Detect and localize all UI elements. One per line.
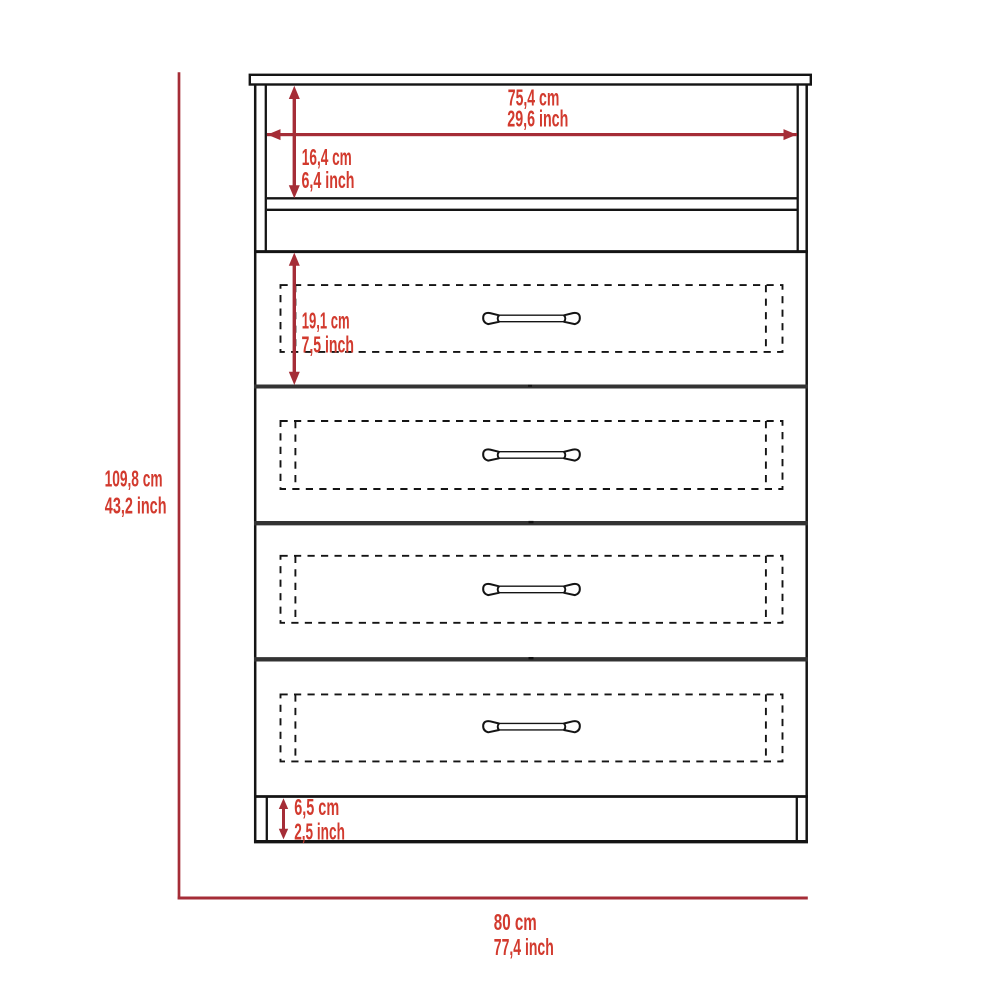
- svg-text:77,4 inch: 77,4 inch: [494, 934, 554, 960]
- svg-text:7,5 inch: 7,5 inch: [302, 332, 355, 358]
- svg-text:6,5 cm: 6,5 cm: [294, 794, 339, 820]
- svg-text:29,6 inch: 29,6 inch: [507, 105, 568, 131]
- svg-text:43,2 inch: 43,2 inch: [105, 492, 167, 518]
- svg-text:109,8 cm: 109,8 cm: [105, 466, 163, 492]
- svg-text:2,5 inch: 2,5 inch: [294, 819, 345, 845]
- svg-text:80 cm: 80 cm: [494, 909, 537, 935]
- svg-text:6,4 inch: 6,4 inch: [302, 167, 355, 193]
- svg-text:19,1 cm: 19,1 cm: [302, 308, 350, 334]
